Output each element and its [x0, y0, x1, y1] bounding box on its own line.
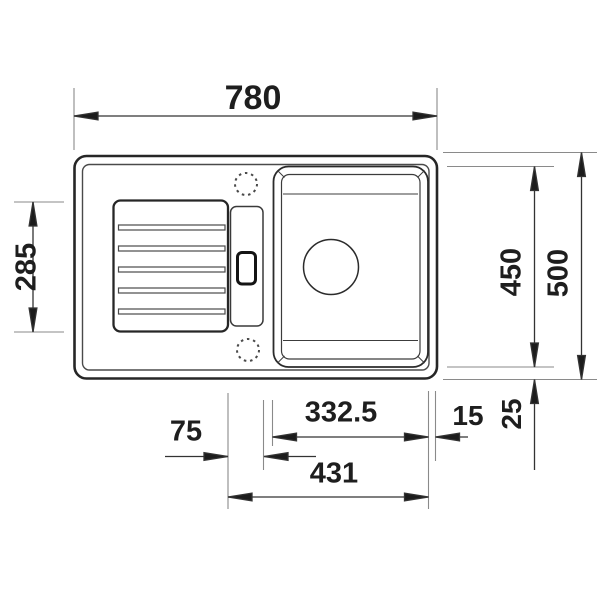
- drain-remote-knob: [238, 253, 256, 285]
- sink-body: [75, 156, 438, 379]
- dim-label-overall-depth: 500: [545, 249, 574, 297]
- dim-label-bowl-outer-depth: 450: [498, 248, 527, 296]
- dim-label-rim-border: 25: [498, 398, 526, 429]
- dim-label-overall-width: 780: [225, 81, 282, 115]
- sink-technical-drawing: 780 285 450 500 332.5 15 25 75 431: [0, 0, 600, 600]
- dim-label-bowl-width: 332.5: [305, 399, 378, 428]
- dim-label-control-panel-width: 75: [170, 418, 202, 447]
- drainboard: [114, 201, 229, 332]
- dim-label-bowl-to-edge-gap: 15: [452, 402, 483, 430]
- drain-hole: [304, 240, 359, 295]
- dim-label-drainboard-length: 285: [13, 243, 42, 291]
- drawing-linework: [0, 0, 600, 600]
- dim-label-bowl-assembly-width: 431: [310, 460, 358, 489]
